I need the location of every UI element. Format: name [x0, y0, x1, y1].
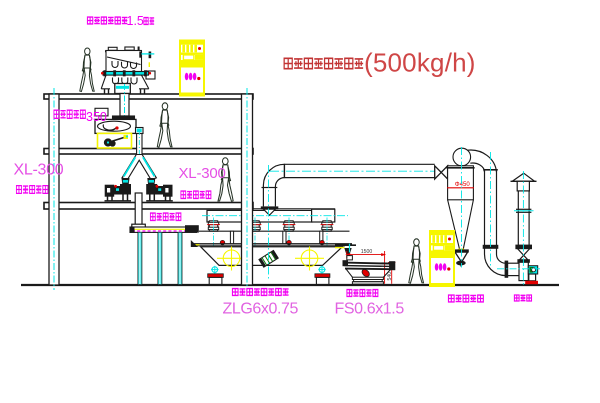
svg-text:1500: 1500	[361, 249, 373, 255]
svg-text:FS0.6x1.5: FS0.6x1.5	[335, 301, 405, 318]
svg-text:(500kg/h): (500kg/h)	[364, 48, 476, 78]
svg-text:XL-300: XL-300	[14, 162, 64, 179]
svg-text:XL-300: XL-300	[179, 165, 226, 182]
svg-text:350: 350	[86, 110, 107, 124]
svg-text:Φ450: Φ450	[455, 182, 471, 188]
svg-text:ZLG6x0.75: ZLG6x0.75	[223, 301, 299, 318]
svg-text:1.5: 1.5	[127, 14, 144, 28]
